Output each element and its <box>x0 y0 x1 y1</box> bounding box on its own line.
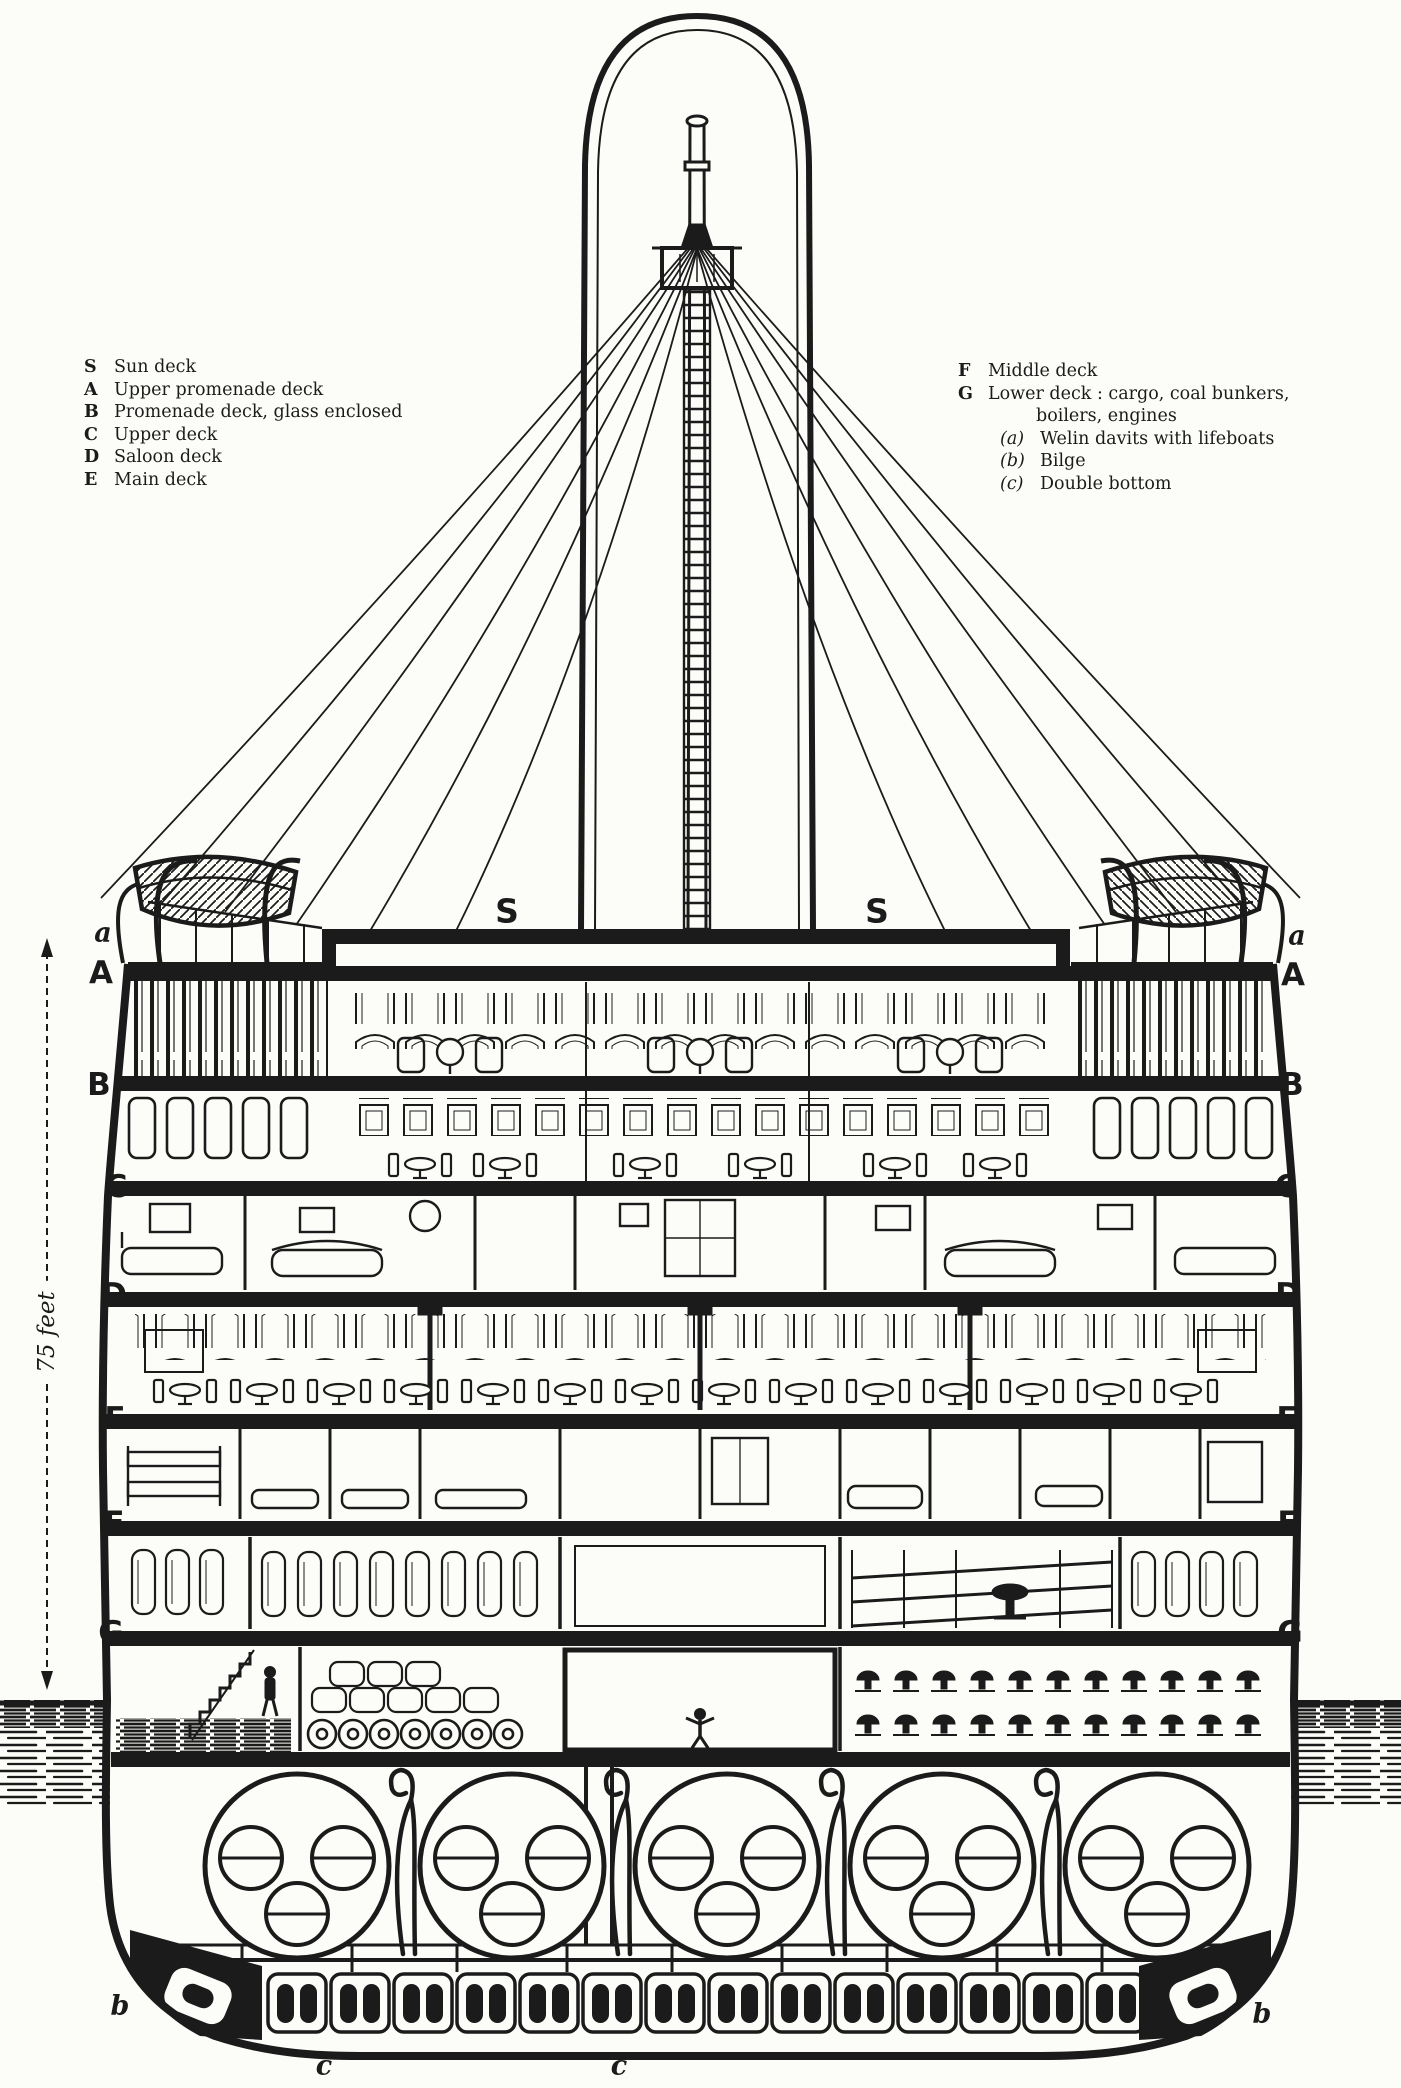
legend-key: F <box>958 360 988 383</box>
deck-f-interior <box>132 1537 1257 1629</box>
lifeboat-davits-left <box>118 857 322 963</box>
legend-row: DSaloon deck <box>84 446 402 469</box>
deck-mark-G-left: G <box>98 1615 123 1651</box>
legend-key: B <box>84 401 114 424</box>
deck-c-interior <box>122 1196 1275 1290</box>
legend-row: SSun deck <box>84 356 402 379</box>
legend-row: EMain deck <box>84 469 402 492</box>
mast-ladder <box>684 290 710 930</box>
legend-row: (b)Bilge <box>958 450 1289 473</box>
double-bottom-mark-left: c <box>316 2051 332 2082</box>
legend-label: Lower deck : cargo, coal bunkers, <box>988 383 1289 406</box>
lifeboat-davits-right <box>1079 857 1283 963</box>
deck-mark-a-davit-right: a <box>1288 921 1306 952</box>
deck-mark-D-right: D <box>1275 1277 1301 1313</box>
deck-mark-F-left: F <box>103 1505 124 1541</box>
legend-right: FMiddle deck GLower deck : cargo, coal b… <box>958 360 1289 495</box>
deck-mark-E-right: E <box>1276 1401 1297 1437</box>
deck-mark-F-right: F <box>1277 1505 1298 1541</box>
legend-left: SSun deck AUpper promenade deck BPromena… <box>84 356 402 491</box>
engine-room-cylinders <box>855 1671 1261 1735</box>
ship-cross-section-figure: SSun deck AUpper promenade deck BPromena… <box>0 0 1401 2088</box>
legend-key: E <box>84 469 114 492</box>
legend-row: CUpper deck <box>84 424 402 447</box>
deck-mark-A-left: A <box>89 955 113 991</box>
legend-label-continuation: boilers, engines <box>958 405 1289 428</box>
legend-label: Main deck <box>114 469 207 492</box>
deck-mark-B-left: B <box>87 1067 111 1103</box>
deck-mark-a-davit-left: a <box>94 918 112 949</box>
deck-mark-B-right: B <box>1280 1067 1304 1103</box>
bilge-mark-right: b <box>1253 1999 1272 2030</box>
deck-mark-C-left: C <box>105 1169 128 1205</box>
legend-label: Upper deck <box>114 424 217 447</box>
legend-key: A <box>84 379 114 402</box>
legend-label: Promenade deck, glass enclosed <box>114 401 402 424</box>
legend-key: G <box>958 383 988 406</box>
deck-d-interior <box>135 1307 1266 1410</box>
legend-key: (b) <box>1000 450 1040 473</box>
double-bottom-mark-right: c <box>611 2051 627 2082</box>
legend-label: Double bottom <box>1040 473 1172 496</box>
legend-row: GLower deck : cargo, coal bunkers, <box>958 383 1289 406</box>
engraving-canvas <box>0 0 1401 2088</box>
legend-label: Saloon deck <box>114 446 222 469</box>
legend-label: Middle deck <box>988 360 1097 383</box>
legend-row: FMiddle deck <box>958 360 1289 383</box>
deck-mark-C-right: C <box>1275 1169 1298 1205</box>
legend-key: S <box>84 356 114 379</box>
deck-b-interior <box>129 1091 1272 1181</box>
deck-mark-D-left: D <box>101 1277 127 1313</box>
water-left <box>0 1700 110 1806</box>
legend-key: (a) <box>1000 428 1040 451</box>
legend-label: Bilge <box>1040 450 1086 473</box>
bilge-mark-left: b <box>111 1991 130 2022</box>
deck-mark-sun-left: S <box>495 892 519 931</box>
boiler-hold <box>170 1767 1249 1972</box>
legend-label: Sun deck <box>114 356 196 379</box>
deck-g-interior <box>116 1647 1261 1752</box>
legend-label: Welin davits with lifeboats <box>1040 428 1274 451</box>
deck-a-interior <box>132 981 1269 1076</box>
deck-mark-sun-right: S <box>865 892 889 931</box>
deck-e-interior <box>128 1429 1262 1519</box>
legend-key: C <box>84 424 114 447</box>
water-right <box>1291 1700 1401 1806</box>
deck-mark-G-right: G <box>1277 1615 1302 1651</box>
deck-mark-E-left: E <box>104 1401 125 1437</box>
deck-mark-A-right: A <box>1281 957 1305 993</box>
legend-row: (c)Double bottom <box>958 473 1289 496</box>
legend-row: BPromenade deck, glass enclosed <box>84 401 402 424</box>
legend-row: (a)Welin davits with lifeboats <box>958 428 1289 451</box>
legend-row: AUpper promenade deck <box>84 379 402 402</box>
legend-key: D <box>84 446 114 469</box>
measure-label: 75 feet <box>34 1281 60 1383</box>
legend-key: (c) <box>1000 473 1040 496</box>
legend-label: Upper promenade deck <box>114 379 323 402</box>
